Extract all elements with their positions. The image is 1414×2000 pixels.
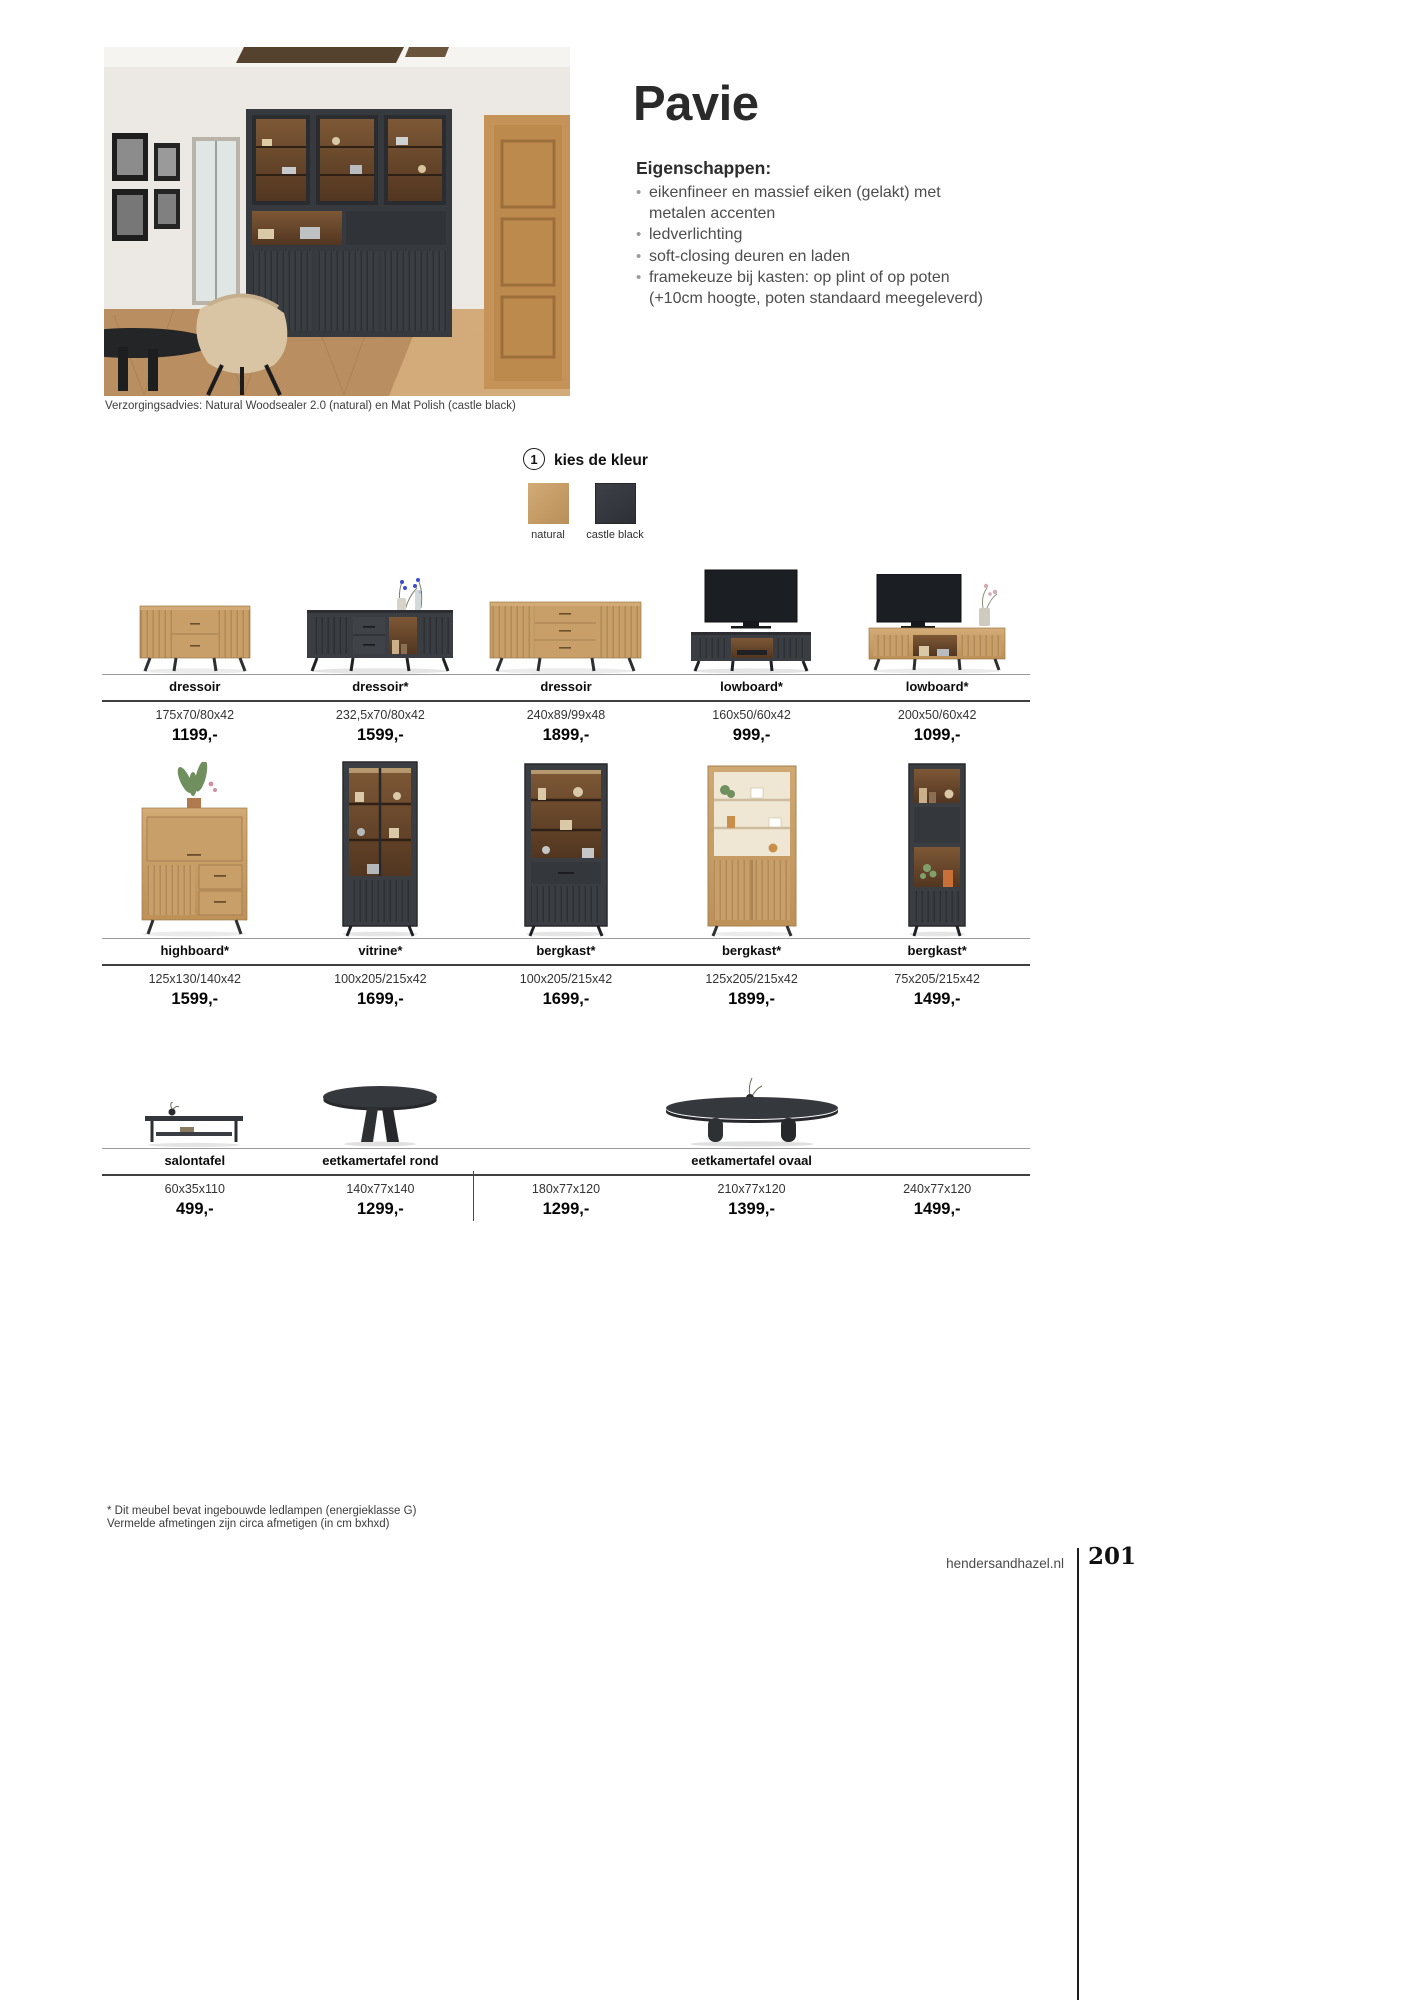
hero-photo xyxy=(104,47,570,396)
step-number-badge: 1 xyxy=(523,448,545,470)
color-swatch-castle-black xyxy=(595,483,636,524)
product-image-cell xyxy=(102,1102,288,1148)
dressoir-illustration xyxy=(136,596,254,674)
oval-table-illustration xyxy=(662,1076,842,1148)
room-scene-illustration xyxy=(104,47,570,396)
color-swatch-natural xyxy=(528,483,569,524)
product-image-cell xyxy=(288,1084,474,1148)
product-names-row: dressoir dressoir* dressoir lowboard* lo… xyxy=(102,675,1030,700)
product-group-name: salontafel xyxy=(102,1149,288,1174)
feature-item: •soft-closing deuren en laden xyxy=(636,247,1036,268)
feature-text: soft-closing deuren en laden xyxy=(649,247,850,268)
product-price: 1599,- xyxy=(288,726,474,745)
product-price: 1499,- xyxy=(844,1200,1030,1219)
bergkast-narrow-illustration xyxy=(905,760,969,938)
product-dimensions: 232,5x70/80x42 xyxy=(288,708,474,722)
product-images-row xyxy=(102,556,1030,674)
footnote-dimensions: Vermelde afmetingen zijn circa afmetigen… xyxy=(107,1518,416,1531)
product-dims-row: 60x35x110 140x77x140 180x77x120 210x77x1… xyxy=(102,1176,1030,1196)
group-divider xyxy=(473,1171,474,1221)
product-dimensions: 175x70/80x42 xyxy=(102,708,288,722)
product-price: 1899,- xyxy=(659,990,845,1009)
product-image-cell xyxy=(288,760,474,938)
color-step-label: kies de kleur xyxy=(554,452,648,470)
dressoir-illustration xyxy=(488,586,643,674)
product-price: 1499,- xyxy=(844,990,1030,1009)
product-row-2: highboard* vitrine* bergkast* bergkast* … xyxy=(102,756,1030,1009)
product-dimensions: 140x77x140 xyxy=(288,1182,474,1196)
product-dimensions: 180x77x120 xyxy=(473,1182,659,1196)
lowboard-tv-illustration xyxy=(867,574,1007,674)
footnotes: * Dit meubel bevat ingebouwde ledlampen … xyxy=(107,1505,416,1531)
product-name: lowboard* xyxy=(844,675,1030,700)
product-name: dressoir* xyxy=(288,675,474,700)
footnote-led: * Dit meubel bevat ingebouwde ledlampen … xyxy=(107,1505,416,1518)
product-dims-row: 175x70/80x42 232,5x70/80x42 240x89/99x48… xyxy=(102,702,1030,722)
product-price: 1399,- xyxy=(659,1200,845,1219)
dressoir-black-illustration xyxy=(305,574,455,674)
product-dimensions: 60x35x110 xyxy=(102,1182,288,1196)
product-images-row xyxy=(102,1058,1030,1148)
page-number-bar xyxy=(1077,1548,1079,2000)
product-price: 1199,- xyxy=(102,726,288,745)
bergkast-illustration xyxy=(520,760,612,938)
bullet-icon: • xyxy=(636,247,649,268)
product-image-cell xyxy=(659,760,845,938)
product-prices-row: 1199,- 1599,- 1899,- 999,- 1099,- xyxy=(102,722,1030,745)
features-list: •eikenfineer en massief eiken (gelakt) m… xyxy=(636,183,1036,310)
product-image-cell xyxy=(288,574,474,674)
feature-text: framekeuze bij kasten: op plint of op po… xyxy=(649,268,983,309)
product-image-cell xyxy=(473,1076,1030,1148)
features-heading: Eigenschappen: xyxy=(636,158,771,179)
lowboard-tv-illustration xyxy=(689,568,814,674)
product-images-row xyxy=(102,756,1030,938)
page-number: 201 xyxy=(1088,1543,1136,1570)
product-name: bergkast* xyxy=(473,939,659,964)
website-url: hendersandhazel.nl xyxy=(946,1556,1064,1571)
bullet-icon: • xyxy=(636,268,649,289)
product-dimensions: 75x205/215x42 xyxy=(844,972,1030,986)
product-image-cell xyxy=(844,574,1030,674)
product-name: vitrine* xyxy=(288,939,474,964)
bullet-icon: • xyxy=(636,183,649,204)
product-dimensions: 100x205/215x42 xyxy=(473,972,659,986)
product-image-cell xyxy=(473,760,659,938)
product-name: lowboard* xyxy=(659,675,845,700)
product-name: dressoir xyxy=(473,675,659,700)
product-prices-row: 1599,- 1699,- 1699,- 1899,- 1499,- xyxy=(102,986,1030,1009)
product-dimensions: 240x77x120 xyxy=(844,1182,1030,1196)
product-dimensions: 100x205/215x42 xyxy=(288,972,474,986)
product-names-row: salontafel eetkamertafel rond eetkamerta… xyxy=(102,1149,1030,1174)
product-price: 999,- xyxy=(659,726,845,745)
product-image-cell xyxy=(473,586,659,674)
product-image-cell xyxy=(844,760,1030,938)
product-price: 499,- xyxy=(102,1200,288,1219)
product-dimensions: 240x89/99x48 xyxy=(473,708,659,722)
product-dimensions: 160x50/60x42 xyxy=(659,708,845,722)
product-price: 1299,- xyxy=(288,1200,474,1219)
product-image-cell xyxy=(659,568,845,674)
collection-title: Pavie xyxy=(633,76,759,132)
product-dims-row: 125x130/140x42 100x205/215x42 100x205/21… xyxy=(102,966,1030,986)
bullet-icon: • xyxy=(636,225,649,246)
product-dimensions: 125x205/215x42 xyxy=(659,972,845,986)
product-price: 1699,- xyxy=(473,990,659,1009)
product-prices-row: 499,- 1299,- 1299,- 1399,- 1499,- xyxy=(102,1196,1030,1219)
product-group-name: eetkamertafel ovaal xyxy=(473,1149,1030,1174)
product-image-cell xyxy=(102,596,288,674)
product-row-3: salontafel eetkamertafel rond eetkamerta… xyxy=(102,1058,1030,1219)
product-price: 1899,- xyxy=(473,726,659,745)
product-names-row: highboard* vitrine* bergkast* bergkast* … xyxy=(102,939,1030,964)
product-price: 1699,- xyxy=(288,990,474,1009)
feature-item: •eikenfineer en massief eiken (gelakt) m… xyxy=(636,183,1036,224)
product-name: highboard* xyxy=(102,939,288,964)
product-price: 1099,- xyxy=(844,726,1030,745)
product-dimensions: 200x50/60x42 xyxy=(844,708,1030,722)
round-table-illustration xyxy=(320,1084,440,1148)
product-row-1: dressoir dressoir* dressoir lowboard* lo… xyxy=(102,556,1030,745)
product-name: dressoir xyxy=(102,675,288,700)
highboard-illustration xyxy=(137,762,252,938)
product-group-name: eetkamertafel rond xyxy=(288,1149,474,1174)
product-price: 1599,- xyxy=(102,990,288,1009)
product-name: bergkast* xyxy=(659,939,845,964)
product-image-cell xyxy=(102,762,288,938)
bergkast-illustration xyxy=(703,760,801,938)
product-dimensions: 210x77x120 xyxy=(659,1182,845,1196)
swatch-label-castle-black: castle black xyxy=(570,529,660,541)
product-price: 1299,- xyxy=(473,1200,659,1219)
product-name: bergkast* xyxy=(844,939,1030,964)
feature-item: •framekeuze bij kasten: op plint of op p… xyxy=(636,268,1036,309)
photo-caption: Verzorgingsadvies: Natural Woodsealer 2.… xyxy=(105,400,725,412)
feature-text: ledverlichting xyxy=(649,225,742,246)
salontafel-illustration xyxy=(142,1102,247,1148)
product-dimensions: 125x130/140x42 xyxy=(102,972,288,986)
vitrine-illustration xyxy=(337,760,423,938)
feature-text: eikenfineer en massief eiken (gelakt) me… xyxy=(649,183,941,224)
catalog-page: Verzorgingsadvies: Natural Woodsealer 2.… xyxy=(0,0,1414,2000)
feature-item: •ledverlichting xyxy=(636,225,1036,246)
